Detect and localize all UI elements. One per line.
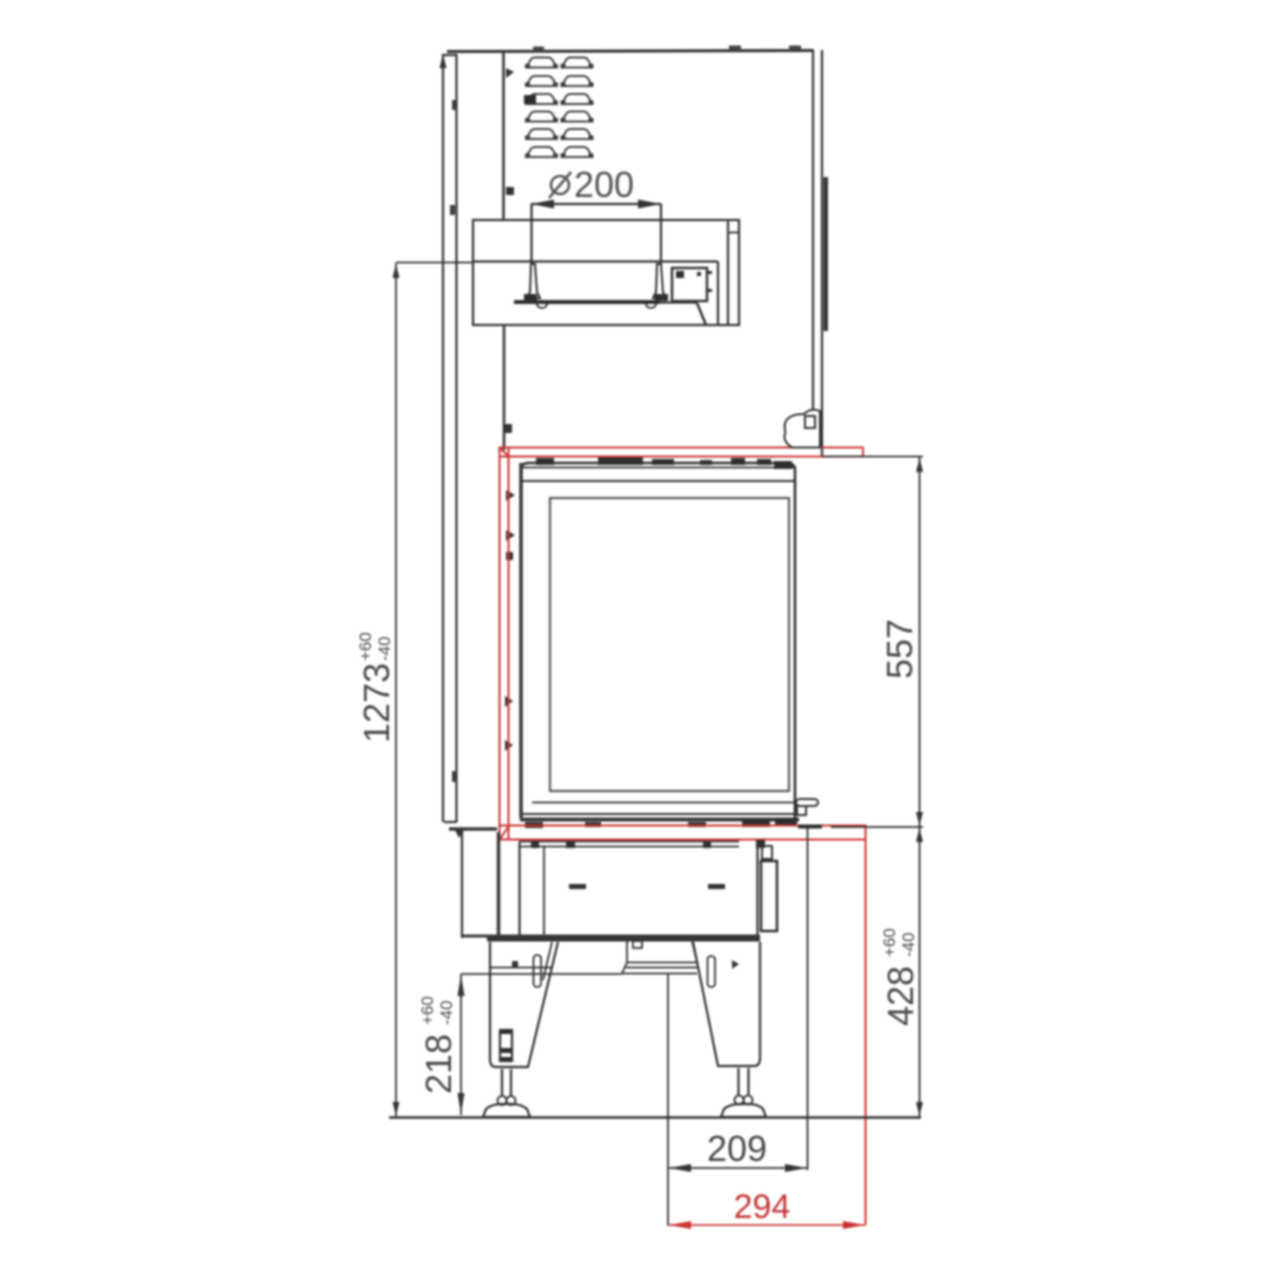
svg-text:+60: +60 (356, 632, 375, 661)
svg-text:+60: +60 (880, 928, 899, 957)
svg-text:-40: -40 (437, 1000, 456, 1025)
svg-text:+60: +60 (418, 996, 437, 1025)
svg-text:294: 294 (734, 1188, 791, 1226)
svg-text:200: 200 (574, 164, 634, 205)
svg-text:-40: -40 (899, 932, 918, 957)
svg-text:557: 557 (879, 619, 920, 679)
svg-text:428: 428 (880, 966, 921, 1026)
svg-text:1273: 1273 (356, 663, 397, 743)
svg-text:-40: -40 (375, 636, 394, 661)
svg-text:209: 209 (707, 1128, 767, 1169)
svg-text:218: 218 (418, 1034, 459, 1094)
